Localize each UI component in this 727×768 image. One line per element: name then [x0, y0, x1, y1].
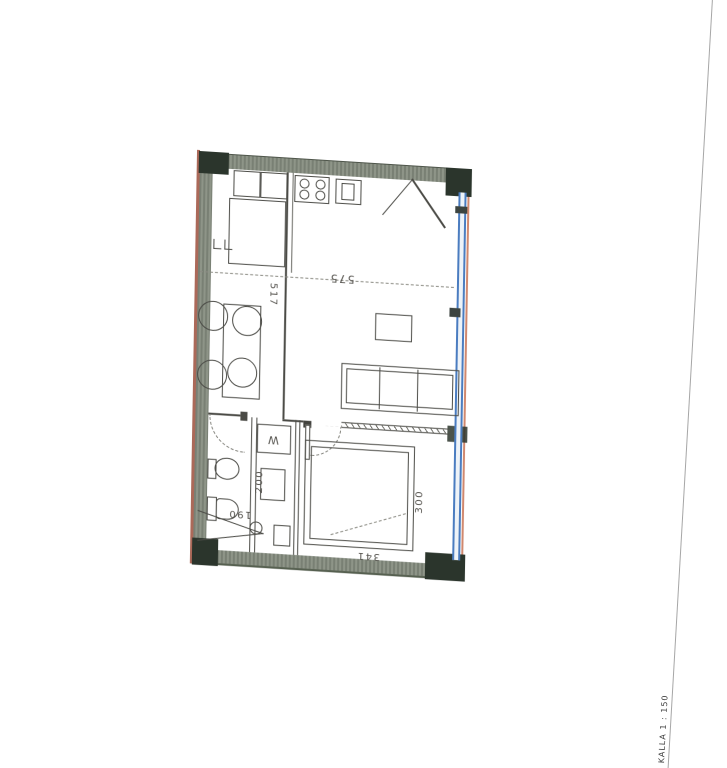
stove — [294, 175, 329, 204]
dim-living-width: 575 — [316, 269, 368, 286]
wall-bottom — [193, 549, 463, 581]
tall-cabinet — [228, 198, 286, 268]
partition-living-bed-right — [341, 422, 449, 435]
burner-icon — [315, 190, 325, 201]
floor-plan: 575 517 190 W 200 300 341 — [193, 152, 470, 581]
column-bottom-left — [192, 538, 218, 567]
kitchen-cabinet-2 — [260, 172, 287, 200]
bedroom-west-wall — [293, 420, 300, 555]
radiator-mark — [213, 239, 221, 249]
dim-dining-depth: 517 — [266, 279, 279, 310]
radiator-mark — [224, 240, 232, 250]
bed-inner — [309, 446, 409, 545]
entrance-threshold — [273, 525, 290, 547]
ceiling-mark-line — [382, 179, 413, 216]
counter-edge-line — [291, 173, 294, 273]
sink-basin — [341, 183, 354, 201]
burner-icon — [299, 189, 309, 200]
dim-bathroom-width: 190 — [220, 505, 260, 521]
washing-machine-label: W — [268, 433, 279, 447]
shower-drain — [249, 521, 262, 535]
window-handle — [449, 308, 460, 318]
page-edge-line — [667, 0, 713, 768]
kitchen-cabinet-1 — [233, 170, 260, 198]
scanned-floorplan-page: KALLA 1 : 150 — [0, 0, 727, 768]
column-top-left — [199, 151, 229, 175]
sofa-inner — [346, 368, 454, 410]
toilet — [214, 457, 239, 481]
bathroom-door-swing — [209, 415, 246, 453]
burner-icon — [315, 179, 325, 190]
ceiling-mark-line — [411, 178, 446, 228]
dim-bedroom-depth: 300 — [414, 479, 427, 524]
washing-machine: W — [257, 424, 292, 455]
dim-hall-length: 200 — [254, 459, 267, 504]
coffee-table — [375, 313, 412, 342]
burner-icon — [299, 178, 309, 189]
window-tick-top — [455, 206, 467, 214]
